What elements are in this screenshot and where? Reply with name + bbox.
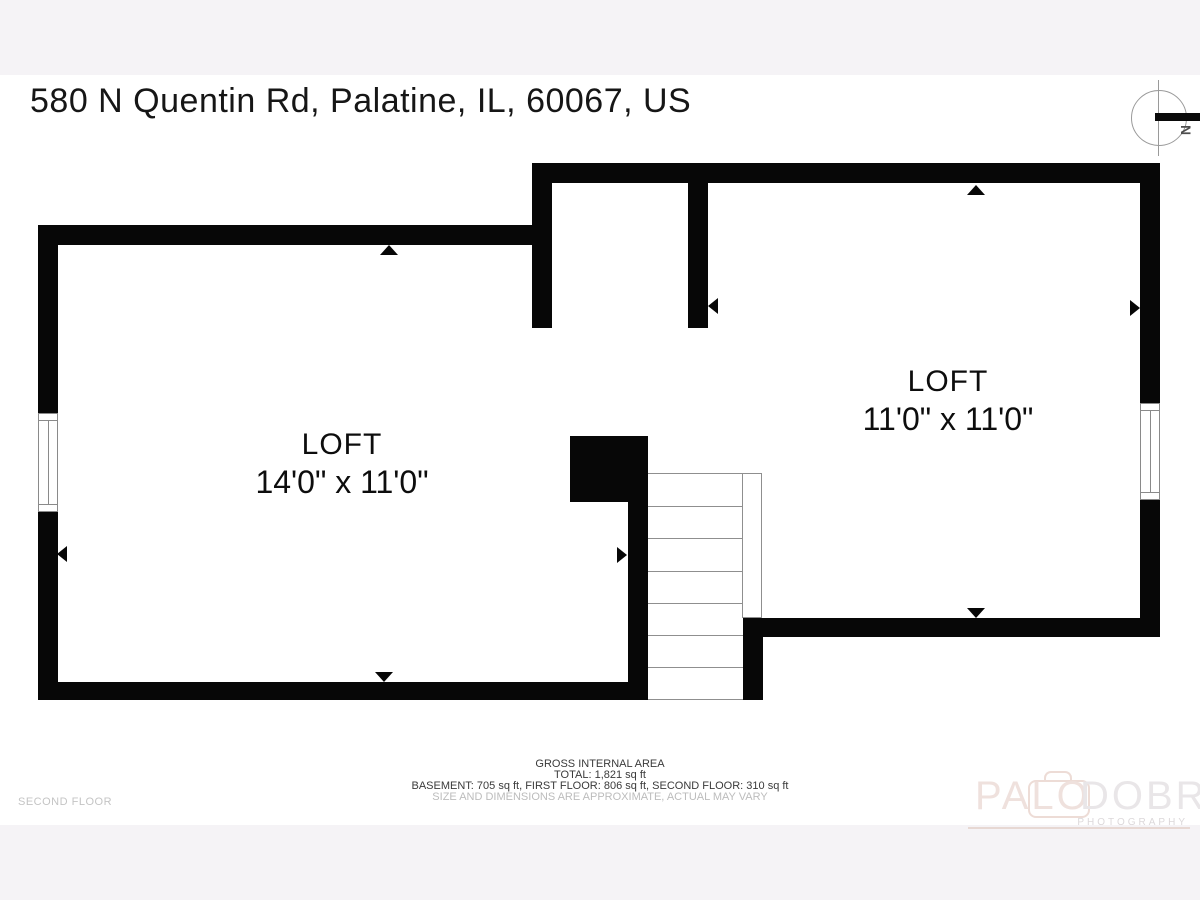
stair-tread-line	[648, 667, 743, 668]
watermark-underline	[968, 827, 1190, 829]
floor-label: SECOND FLOOR	[18, 796, 112, 808]
watermark-brand-second: DOBRIK	[1080, 774, 1200, 819]
wall-left-room-right	[628, 502, 648, 700]
wall-marker-arrow-icon	[1130, 300, 1140, 316]
wall-marker-arrow-icon	[617, 547, 627, 563]
window-pane-line	[48, 421, 49, 504]
window-right-wall	[1140, 403, 1160, 500]
wall-top-left-room	[38, 225, 552, 245]
stair-tread-line	[648, 699, 743, 700]
window-left-wall	[38, 413, 58, 512]
wall-marker-arrow-icon	[967, 185, 985, 195]
room-dimensions: 14'0" x 11'0"	[212, 462, 472, 502]
room-label-loft-right: LOFT 11'0" x 11'0"	[818, 365, 1078, 439]
wall-hallway-left	[532, 183, 552, 328]
window-sill-line	[39, 504, 57, 505]
wall-bottom-right-room	[743, 618, 1160, 637]
stair-rail	[742, 473, 762, 618]
stair-tread-line	[648, 635, 743, 636]
compass-icon: N	[1120, 78, 1200, 158]
area-summary: GROSS INTERNAL AREA TOTAL: 1,821 sq ft B…	[300, 759, 900, 803]
wall-block-chimney	[570, 436, 648, 502]
page-title: 580 N Quentin Rd, Palatine, IL, 60067, U…	[30, 82, 691, 121]
room-dimensions: 11'0" x 11'0"	[818, 399, 1078, 439]
wall-marker-arrow-icon	[708, 298, 718, 314]
stair-tread-line	[648, 603, 743, 604]
compass-north-label: N	[1178, 122, 1194, 138]
room-label-loft-left: LOFT 14'0" x 11'0"	[212, 428, 472, 502]
wall-marker-arrow-icon	[380, 245, 398, 255]
stair-tread-line	[648, 506, 743, 507]
stair-tread-line	[648, 571, 743, 572]
window-sill-line	[1141, 492, 1159, 493]
wall-left-lower	[38, 512, 58, 700]
staircase	[648, 473, 743, 700]
wall-marker-arrow-icon	[375, 672, 393, 682]
compass-arrow-bar	[1155, 113, 1200, 121]
area-summary-disclaimer: SIZE AND DIMENSIONS ARE APPROXIMATE, ACT…	[300, 792, 900, 803]
wall-right-upper	[1140, 163, 1160, 403]
wall-top-right-section	[532, 163, 1160, 183]
wall-marker-arrow-icon	[967, 608, 985, 618]
wall-stair-right	[743, 618, 763, 700]
floorplan-page: 580 N Quentin Rd, Palatine, IL, 60067, U…	[0, 0, 1200, 900]
wall-marker-arrow-icon	[57, 546, 67, 562]
window-pane-line	[1150, 411, 1151, 492]
wall-right-room-left-partial	[688, 183, 708, 328]
stair-tread-line	[648, 473, 743, 474]
wall-right-lower	[1140, 500, 1160, 637]
wall-left-upper	[38, 245, 58, 413]
watermark-brand-first: PALO	[975, 774, 1091, 819]
room-name: LOFT	[818, 365, 1078, 399]
room-name: LOFT	[212, 428, 472, 462]
wall-bottom-left-room	[38, 682, 648, 700]
stair-tread-line	[648, 538, 743, 539]
